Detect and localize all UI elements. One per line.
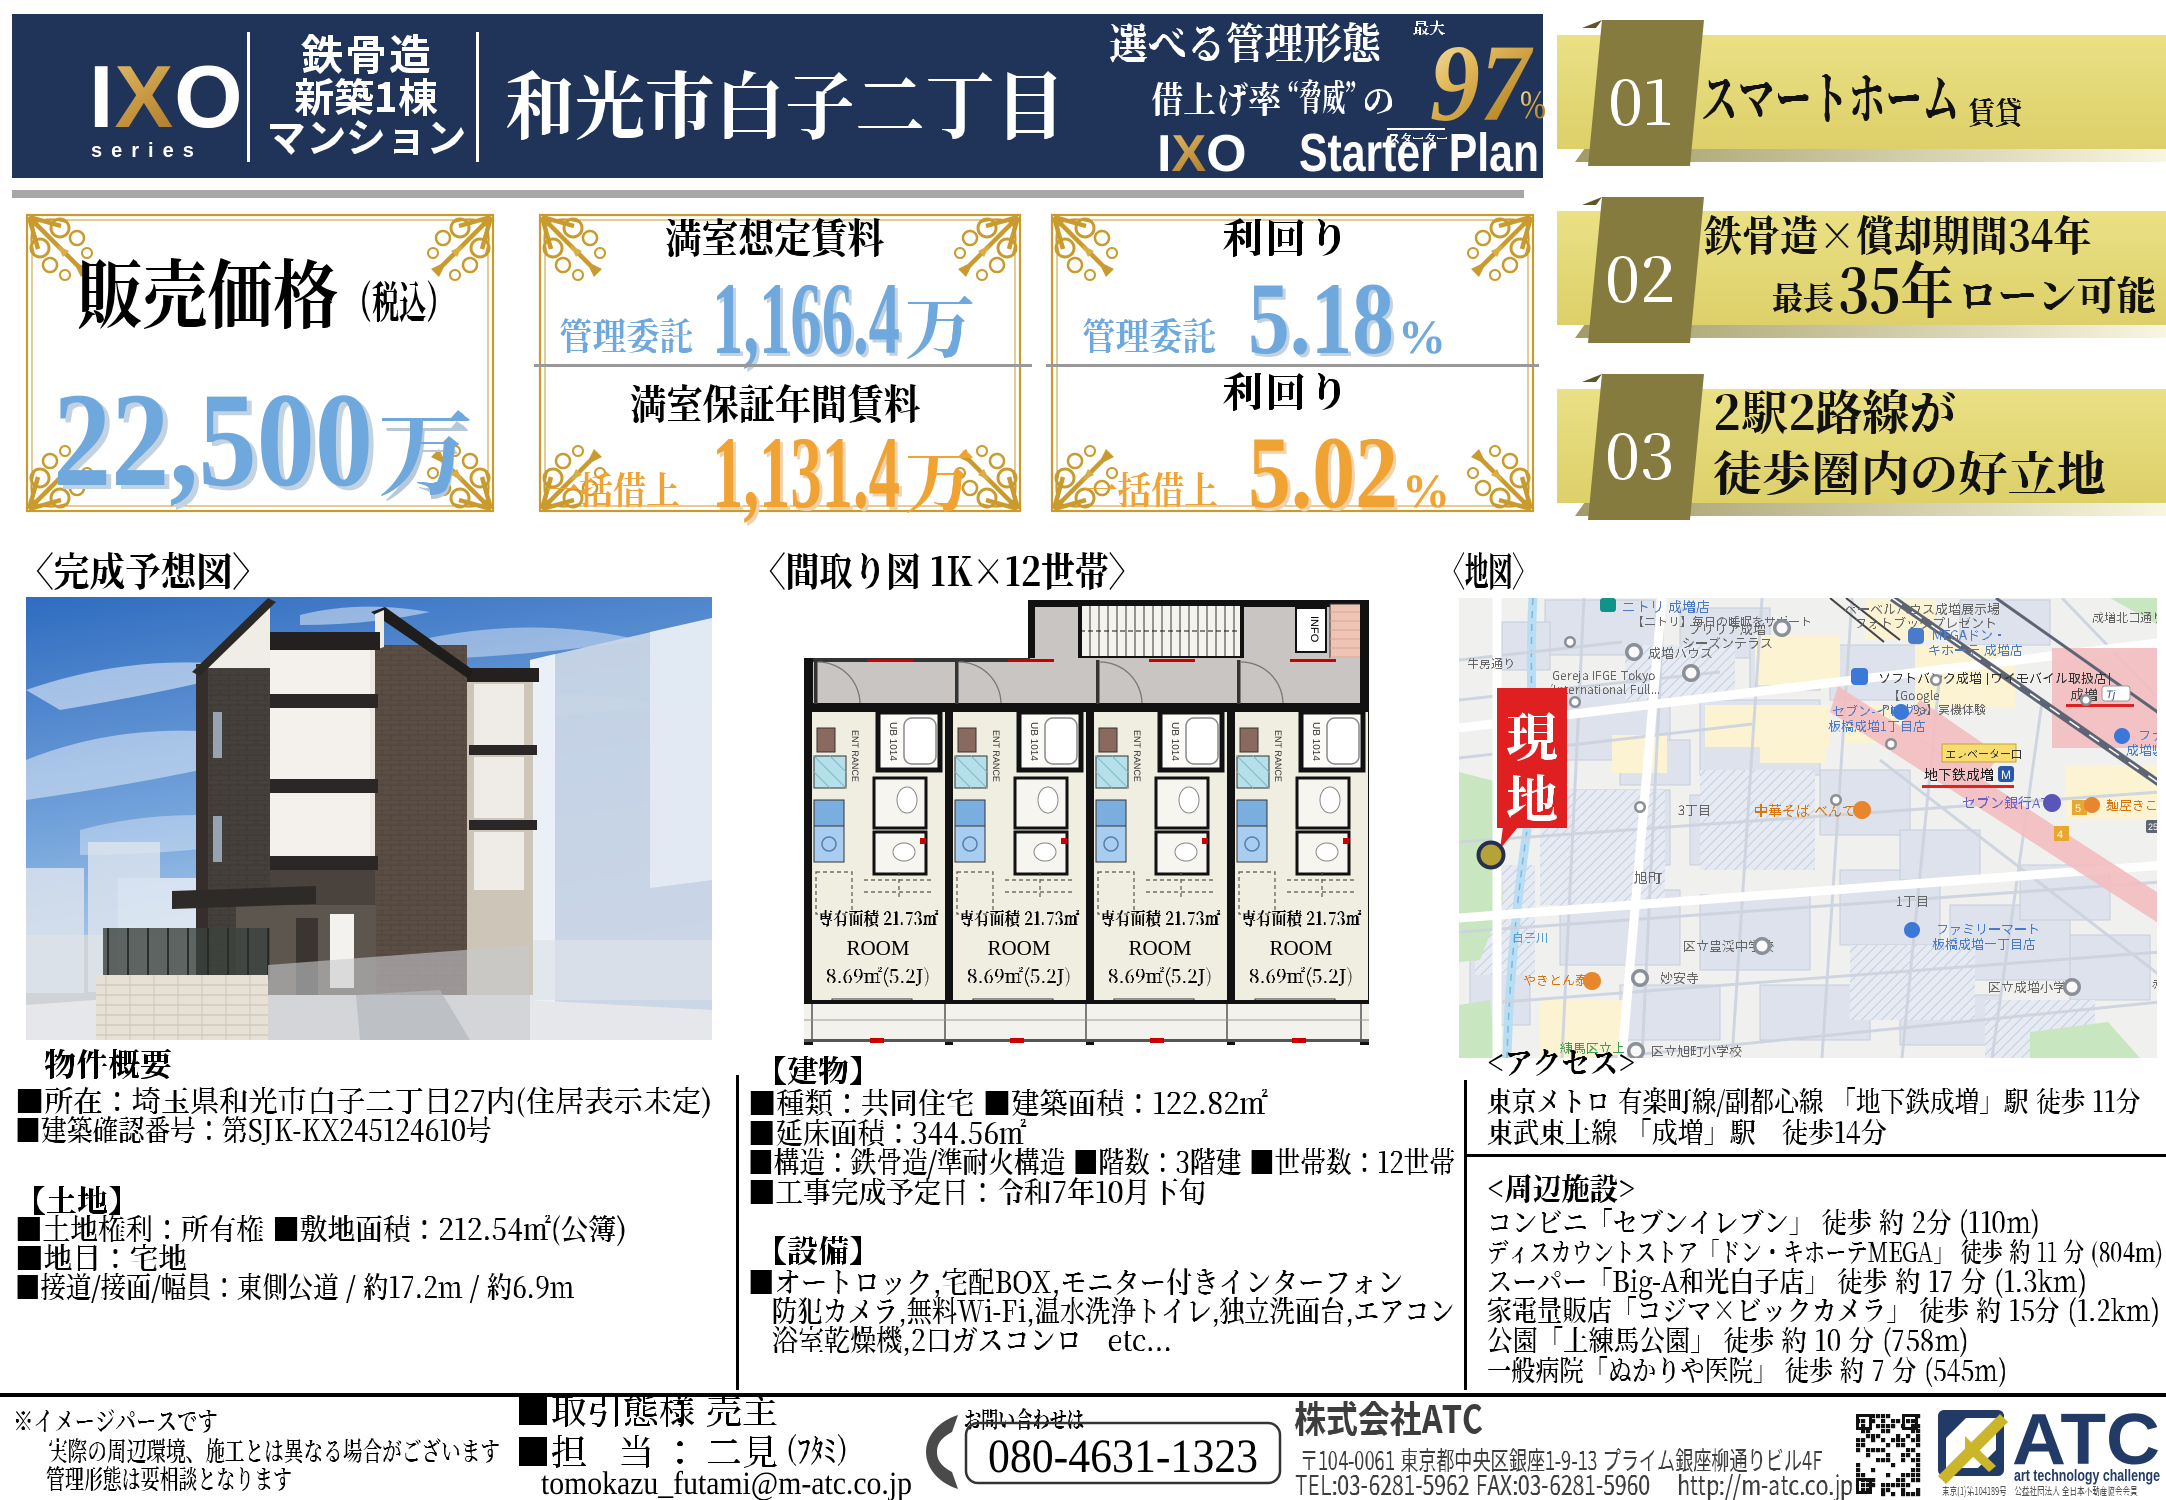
svg-text:ENT RANCE: ENT RANCE xyxy=(1273,730,1283,782)
svg-text:UB 1014: UB 1014 xyxy=(887,722,898,761)
svg-text:5.02: 5.02 xyxy=(1248,416,1398,530)
svg-text:1,166.4: 1,166.4 xyxy=(712,262,900,376)
svg-text:5: 5 xyxy=(2075,803,2081,815)
svg-text:254: 254 xyxy=(2148,822,2163,832)
svg-text:art technology challenge: art technology challenge xyxy=(2014,1466,2160,1485)
svg-text:5.18: 5.18 xyxy=(1248,262,1394,376)
svg-text:%: % xyxy=(1520,82,1546,127)
svg-text:4: 4 xyxy=(2057,829,2063,841)
svg-text:080-4631-1323: 080-4631-1323 xyxy=(988,1430,1258,1483)
svg-text:1,131.4: 1,131.4 xyxy=(712,416,900,530)
svg-text:UB 1014: UB 1014 xyxy=(1310,722,1321,761)
svg-text:%: % xyxy=(1398,311,1446,364)
svg-text:IXO: IXO xyxy=(1157,125,1247,183)
svg-text:Starter Plan: Starter Plan xyxy=(1299,123,1539,183)
svg-text:%: % xyxy=(1402,465,1450,518)
svg-text:ROOM: ROOM xyxy=(1269,936,1332,960)
svg-text:ENT RANCE: ENT RANCE xyxy=(850,730,860,782)
svg-text:ENT RANCE: ENT RANCE xyxy=(1132,730,1142,782)
svg-text:series: series xyxy=(91,140,203,162)
svg-text:ROOM: ROOM xyxy=(1128,936,1191,960)
svg-text:ROOM: ROOM xyxy=(846,936,909,960)
svg-text:ROOM: ROOM xyxy=(987,936,1050,960)
svg-text:UB 1014: UB 1014 xyxy=(1028,722,1039,761)
svg-text:UB 1014: UB 1014 xyxy=(1169,722,1180,761)
svg-text:M: M xyxy=(2001,768,2011,782)
svg-text:IXO: IXO xyxy=(89,47,244,146)
svg-text:22,500: 22,500 xyxy=(53,366,373,515)
svg-text:tomokazu_futami@m-atc.co.jp: tomokazu_futami@m-atc.co.jp xyxy=(541,1466,912,1500)
svg-text:INFO: INFO xyxy=(1308,616,1320,643)
svg-text:Tj: Tj xyxy=(2106,689,2116,701)
svg-text:ENT RANCE: ENT RANCE xyxy=(991,730,1001,782)
